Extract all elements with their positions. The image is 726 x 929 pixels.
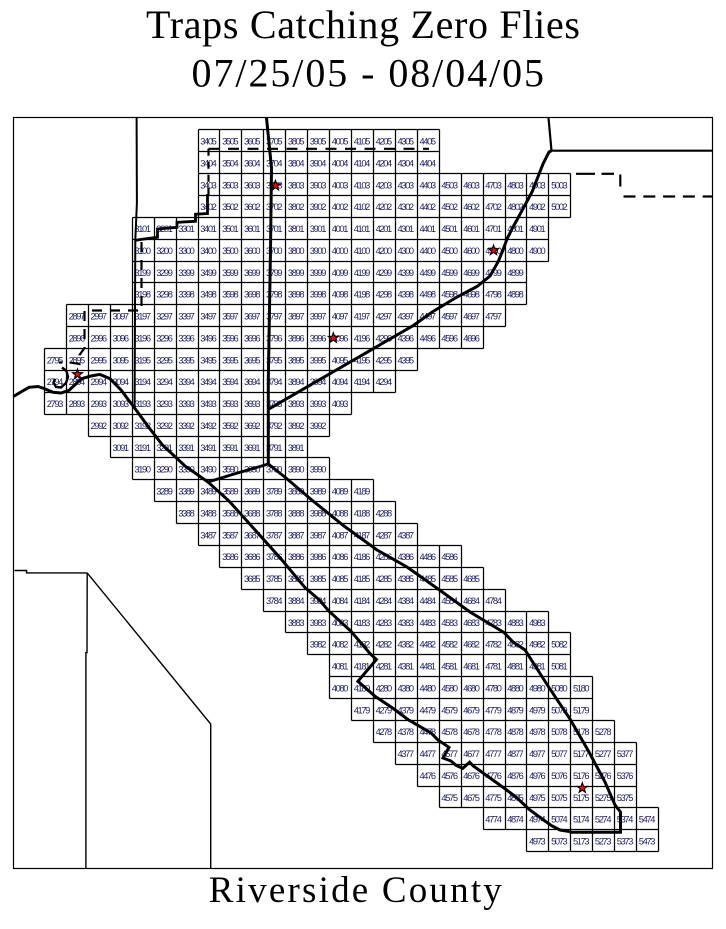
svg-text:3396: 3396 (178, 334, 195, 344)
svg-text:3900: 3900 (310, 246, 327, 256)
svg-text:4976: 4976 (529, 771, 546, 781)
svg-text:3500: 3500 (222, 246, 239, 256)
svg-text:4297: 4297 (376, 312, 393, 322)
svg-text:4979: 4979 (529, 705, 546, 715)
svg-text:4294: 4294 (376, 377, 393, 387)
svg-text:5081: 5081 (551, 662, 568, 672)
svg-text:4800: 4800 (507, 246, 524, 256)
svg-text:2896: 2896 (69, 334, 86, 344)
svg-text:4186: 4186 (354, 552, 371, 562)
svg-text:3593: 3593 (222, 399, 239, 409)
svg-text:4902: 4902 (529, 202, 546, 212)
svg-text:4876: 4876 (507, 771, 524, 781)
svg-text:3290: 3290 (156, 465, 173, 475)
svg-text:4880: 4880 (507, 684, 524, 694)
svg-text:4899: 4899 (507, 268, 524, 278)
svg-text:4685: 4685 (463, 574, 480, 584)
svg-text:4278: 4278 (376, 727, 393, 737)
svg-text:07/25/05 - 08/04/05: 07/25/05 - 08/04/05 (192, 51, 545, 96)
svg-text:5076: 5076 (551, 771, 568, 781)
svg-text:3884: 3884 (288, 596, 305, 606)
svg-text:4385: 4385 (398, 574, 415, 584)
svg-text:4386: 4386 (398, 552, 415, 562)
svg-text:4404: 4404 (420, 159, 437, 169)
svg-text:3503: 3503 (222, 180, 239, 190)
svg-text:3895: 3895 (288, 355, 305, 365)
svg-text:3890: 3890 (288, 465, 305, 475)
svg-text:4396: 4396 (398, 334, 415, 344)
svg-text:3399: 3399 (178, 268, 195, 278)
svg-text:3799: 3799 (266, 268, 283, 278)
svg-text:3392: 3392 (178, 421, 195, 431)
svg-text:3785: 3785 (266, 574, 283, 584)
svg-text:4477: 4477 (420, 749, 437, 759)
svg-text:5277: 5277 (595, 749, 612, 759)
svg-text:2993: 2993 (91, 399, 108, 409)
svg-text:5077: 5077 (551, 749, 568, 759)
svg-text:5073: 5073 (551, 837, 568, 847)
svg-text:4099: 4099 (332, 268, 349, 278)
svg-text:5173: 5173 (573, 837, 590, 847)
svg-text:4581: 4581 (441, 662, 458, 672)
svg-text:4382: 4382 (398, 640, 415, 650)
svg-text:4097: 4097 (332, 312, 349, 322)
svg-text:3194: 3194 (134, 377, 151, 387)
svg-text:Traps Catching Zero Flies: Traps Catching Zero Flies (146, 2, 580, 47)
svg-text:4774: 4774 (485, 815, 502, 825)
svg-text:3499: 3499 (200, 268, 217, 278)
svg-text:4087: 4087 (332, 530, 349, 540)
svg-text:4098: 4098 (332, 290, 349, 300)
svg-text:3393: 3393 (178, 399, 195, 409)
svg-text:4100: 4100 (354, 246, 371, 256)
svg-text:4575: 4575 (441, 793, 458, 803)
svg-text:3198: 3198 (134, 290, 151, 300)
svg-text:3701: 3701 (266, 224, 283, 234)
svg-text:3992: 3992 (310, 421, 327, 431)
svg-text:3903: 3903 (310, 180, 327, 190)
svg-text:4975: 4975 (529, 793, 546, 803)
svg-text:3804: 3804 (288, 159, 305, 169)
svg-text:4603: 4603 (463, 180, 480, 190)
svg-text:4582: 4582 (441, 640, 458, 650)
svg-text:4378: 4378 (398, 727, 415, 737)
svg-text:5003: 5003 (551, 180, 568, 190)
svg-text:3888: 3888 (288, 509, 305, 519)
svg-text:3196: 3196 (134, 334, 151, 344)
svg-text:4287: 4287 (376, 530, 393, 540)
svg-text:4977: 4977 (529, 749, 546, 759)
svg-text:3093: 3093 (113, 399, 130, 409)
svg-text:3391: 3391 (178, 443, 195, 453)
svg-text:4105: 4105 (354, 137, 371, 147)
svg-text:4503: 4503 (441, 180, 458, 190)
svg-text:2992: 2992 (91, 421, 108, 431)
svg-text:3289: 3289 (156, 487, 173, 497)
svg-text:4680: 4680 (463, 684, 480, 694)
svg-text:4803: 4803 (507, 180, 524, 190)
svg-text:3987: 3987 (310, 530, 327, 540)
svg-text:4201: 4201 (376, 224, 393, 234)
svg-text:3191: 3191 (134, 443, 151, 453)
svg-text:5075: 5075 (551, 793, 568, 803)
svg-text:5074: 5074 (551, 815, 568, 825)
svg-text:3693: 3693 (244, 399, 261, 409)
svg-text:4579: 4579 (441, 705, 458, 715)
svg-text:4089: 4089 (332, 487, 349, 497)
svg-text:4699: 4699 (463, 268, 480, 278)
svg-text:3996: 3996 (310, 334, 327, 344)
svg-text:4597: 4597 (441, 312, 458, 322)
svg-text:2897: 2897 (69, 312, 86, 322)
svg-text:3490: 3490 (200, 465, 217, 475)
svg-text:4002: 4002 (332, 202, 349, 212)
svg-text:3398: 3398 (178, 290, 195, 300)
svg-text:5082: 5082 (551, 640, 568, 650)
svg-text:4781: 4781 (485, 662, 502, 672)
svg-text:3501: 3501 (222, 224, 239, 234)
svg-text:3095: 3095 (113, 355, 130, 365)
svg-text:5176: 5176 (573, 771, 590, 781)
svg-text:3388: 3388 (178, 509, 195, 519)
svg-text:5078: 5078 (551, 727, 568, 737)
svg-text:4185: 4185 (354, 574, 371, 584)
svg-text:4881: 4881 (507, 662, 524, 672)
svg-text:4198: 4198 (354, 290, 371, 300)
svg-text:3897: 3897 (288, 312, 305, 322)
svg-text:3993: 3993 (310, 399, 327, 409)
svg-text:4479: 4479 (420, 705, 437, 715)
svg-text:4300: 4300 (398, 246, 415, 256)
svg-text:3688: 3688 (244, 509, 261, 519)
svg-text:4081: 4081 (332, 662, 349, 672)
svg-text:3686: 3686 (244, 552, 261, 562)
svg-text:3695: 3695 (244, 355, 261, 365)
svg-text:2795: 2795 (47, 355, 64, 365)
svg-text:4777: 4777 (485, 749, 502, 759)
svg-text:3405: 3405 (200, 137, 217, 147)
svg-text:4395: 4395 (398, 355, 415, 365)
svg-text:4502: 4502 (441, 202, 458, 212)
svg-text:4683: 4683 (463, 618, 480, 628)
svg-text:3904: 3904 (310, 159, 327, 169)
svg-text:4701: 4701 (485, 224, 502, 234)
svg-text:4298: 4298 (376, 290, 393, 300)
svg-text:3197: 3197 (134, 312, 151, 322)
svg-text:3300: 3300 (178, 246, 195, 256)
svg-text:4285: 4285 (376, 574, 393, 584)
svg-text:3689: 3689 (244, 487, 261, 497)
svg-text:3999: 3999 (310, 268, 327, 278)
svg-text:3505: 3505 (222, 137, 239, 147)
svg-text:4082: 4082 (332, 640, 349, 650)
svg-text:4583: 4583 (441, 618, 458, 628)
svg-text:4003: 4003 (332, 180, 349, 190)
svg-text:3597: 3597 (222, 312, 239, 322)
svg-text:4377: 4377 (398, 749, 415, 759)
svg-text:4400: 4400 (420, 246, 437, 256)
svg-text:3494: 3494 (200, 377, 217, 387)
svg-text:4484: 4484 (420, 596, 437, 606)
svg-text:3985: 3985 (310, 574, 327, 584)
svg-text:4179: 4179 (354, 705, 371, 715)
svg-text:4775: 4775 (485, 793, 502, 803)
svg-text:5474: 5474 (639, 815, 656, 825)
svg-text:Riverside County: Riverside County (209, 870, 503, 911)
svg-text:4780: 4780 (485, 684, 502, 694)
svg-text:4301: 4301 (398, 224, 415, 234)
svg-text:3599: 3599 (222, 268, 239, 278)
svg-text:3803: 3803 (288, 180, 305, 190)
svg-text:3997: 3997 (310, 312, 327, 322)
svg-text:4702: 4702 (485, 202, 502, 212)
svg-text:3886: 3886 (288, 552, 305, 562)
svg-text:3694: 3694 (244, 377, 261, 387)
svg-text:3397: 3397 (178, 312, 195, 322)
svg-text:3982: 3982 (310, 640, 327, 650)
svg-text:4405: 4405 (420, 137, 437, 147)
svg-text:3587: 3587 (222, 530, 239, 540)
svg-text:4782: 4782 (485, 640, 502, 650)
svg-text:3601: 3601 (244, 224, 261, 234)
svg-text:4194: 4194 (354, 377, 371, 387)
svg-text:4281: 4281 (376, 662, 393, 672)
svg-text:3692: 3692 (244, 421, 261, 431)
svg-text:4586: 4586 (441, 552, 458, 562)
svg-text:3892: 3892 (288, 421, 305, 431)
svg-text:4094: 4094 (332, 377, 349, 387)
svg-text:4101: 4101 (354, 224, 371, 234)
svg-text:4104: 4104 (354, 159, 371, 169)
svg-text:4980: 4980 (529, 684, 546, 694)
svg-text:4283: 4283 (376, 618, 393, 628)
svg-text:4103: 4103 (354, 180, 371, 190)
svg-text:4679: 4679 (463, 705, 480, 715)
svg-text:3600: 3600 (244, 246, 261, 256)
svg-text:3092: 3092 (113, 421, 130, 431)
svg-text:3598: 3598 (222, 290, 239, 300)
svg-text:5376: 5376 (617, 771, 634, 781)
svg-text:3395: 3395 (178, 355, 195, 365)
svg-text:3898: 3898 (288, 290, 305, 300)
svg-text:5274: 5274 (595, 815, 612, 825)
svg-text:2793: 2793 (47, 399, 64, 409)
svg-text:3498: 3498 (200, 290, 217, 300)
svg-text:3497: 3497 (200, 312, 217, 322)
svg-text:4480: 4480 (420, 684, 437, 694)
svg-text:3691: 3691 (244, 443, 261, 453)
svg-text:2994: 2994 (91, 377, 108, 387)
svg-text:4678: 4678 (463, 727, 480, 737)
svg-text:3193: 3193 (134, 399, 151, 409)
svg-text:5273: 5273 (595, 837, 612, 847)
svg-text:4797: 4797 (485, 312, 502, 322)
svg-text:3802: 3802 (288, 202, 305, 212)
svg-text:4305: 4305 (398, 137, 415, 147)
svg-text:4983: 4983 (529, 618, 546, 628)
svg-text:4481: 4481 (420, 662, 437, 672)
svg-text:3801: 3801 (288, 224, 305, 234)
svg-text:3995: 3995 (310, 355, 327, 365)
svg-text:5174: 5174 (573, 815, 590, 825)
svg-text:4399: 4399 (398, 268, 415, 278)
svg-text:4302: 4302 (398, 202, 415, 212)
svg-text:3602: 3602 (244, 202, 261, 212)
svg-text:4901: 4901 (529, 224, 546, 234)
svg-text:4499: 4499 (420, 268, 437, 278)
svg-text:4387: 4387 (398, 530, 415, 540)
svg-text:4677: 4677 (463, 749, 480, 759)
svg-text:4401: 4401 (420, 224, 437, 234)
svg-text:3199: 3199 (134, 268, 151, 278)
svg-text:5278: 5278 (595, 727, 612, 737)
svg-text:3487: 3487 (200, 530, 217, 540)
svg-text:4204: 4204 (376, 159, 393, 169)
svg-text:4284: 4284 (376, 596, 393, 606)
svg-text:3604: 3604 (244, 159, 261, 169)
svg-text:3883: 3883 (288, 618, 305, 628)
svg-text:4295: 4295 (376, 355, 393, 365)
svg-text:4778: 4778 (485, 727, 502, 737)
svg-text:4483: 4483 (420, 618, 437, 628)
svg-text:4878: 4878 (507, 727, 524, 737)
svg-text:4900: 4900 (529, 246, 546, 256)
svg-text:3896: 3896 (288, 334, 305, 344)
svg-text:3401: 3401 (200, 224, 217, 234)
svg-text:3299: 3299 (156, 268, 173, 278)
svg-text:3496: 3496 (200, 334, 217, 344)
svg-text:3702: 3702 (266, 202, 283, 212)
svg-text:3591: 3591 (222, 443, 239, 453)
svg-text:3700: 3700 (266, 246, 283, 256)
svg-text:4288: 4288 (376, 509, 393, 519)
svg-text:3504: 3504 (222, 159, 239, 169)
svg-text:4380: 4380 (398, 684, 415, 694)
svg-text:3605: 3605 (244, 137, 261, 147)
svg-text:3704: 3704 (266, 159, 283, 169)
svg-text:4898: 4898 (507, 290, 524, 300)
svg-text:4779: 4779 (485, 705, 502, 715)
svg-text:4798: 4798 (485, 290, 502, 300)
svg-text:3887: 3887 (288, 530, 305, 540)
svg-text:3905: 3905 (310, 137, 327, 147)
svg-text:4681: 4681 (463, 662, 480, 672)
svg-text:3297: 3297 (156, 312, 173, 322)
svg-text:4879: 4879 (507, 705, 524, 715)
svg-text:5377: 5377 (617, 749, 634, 759)
svg-text:3389: 3389 (178, 487, 195, 497)
svg-text:4696: 4696 (463, 334, 480, 344)
svg-text:4203: 4203 (376, 180, 393, 190)
svg-text:3293: 3293 (156, 399, 173, 409)
svg-text:4093: 4093 (332, 399, 349, 409)
svg-text:4205: 4205 (376, 137, 393, 147)
svg-text:3292: 3292 (156, 421, 173, 431)
svg-text:4883: 4883 (507, 618, 524, 628)
svg-text:3696: 3696 (244, 334, 261, 344)
svg-text:4381: 4381 (398, 662, 415, 672)
svg-text:4299: 4299 (376, 268, 393, 278)
svg-text:4004: 4004 (332, 159, 349, 169)
svg-text:3492: 3492 (200, 421, 217, 431)
svg-text:4398: 4398 (398, 290, 415, 300)
svg-text:4085: 4085 (332, 574, 349, 584)
svg-text:4682: 4682 (463, 640, 480, 650)
svg-text:4676: 4676 (463, 771, 480, 781)
svg-text:4601: 4601 (463, 224, 480, 234)
svg-text:4403: 4403 (420, 180, 437, 190)
svg-text:3495: 3495 (200, 355, 217, 365)
svg-text:4602: 4602 (463, 202, 480, 212)
svg-text:4197: 4197 (354, 312, 371, 322)
svg-text:3788: 3788 (266, 509, 283, 519)
svg-text:4102: 4102 (354, 202, 371, 212)
svg-text:4496: 4496 (420, 334, 437, 344)
svg-text:5375: 5375 (617, 793, 634, 803)
svg-text:3195: 3195 (134, 355, 151, 365)
svg-text:3891: 3891 (288, 443, 305, 453)
svg-text:4784: 4784 (485, 596, 502, 606)
svg-text:3595: 3595 (222, 355, 239, 365)
svg-text:4486: 4486 (420, 552, 437, 562)
svg-text:3301: 3301 (178, 224, 195, 234)
svg-text:4303: 4303 (398, 180, 415, 190)
svg-text:3685: 3685 (244, 574, 261, 584)
svg-text:4005: 4005 (332, 137, 349, 147)
svg-text:5180: 5180 (573, 684, 590, 694)
svg-text:2997: 2997 (91, 312, 108, 322)
svg-text:4084: 4084 (332, 596, 349, 606)
svg-text:4282: 4282 (376, 640, 393, 650)
svg-text:4599: 4599 (441, 268, 458, 278)
svg-text:4576: 4576 (441, 771, 458, 781)
svg-text:3697: 3697 (244, 312, 261, 322)
svg-text:3491: 3491 (200, 443, 217, 453)
svg-text:4874: 4874 (507, 815, 524, 825)
svg-text:4184: 4184 (354, 596, 371, 606)
svg-text:3400: 3400 (200, 246, 217, 256)
svg-text:3502: 3502 (222, 202, 239, 212)
svg-text:4675: 4675 (463, 793, 480, 803)
svg-text:4982: 4982 (529, 640, 546, 650)
svg-text:4684: 4684 (463, 596, 480, 606)
svg-text:4304: 4304 (398, 159, 415, 169)
svg-text:3298: 3298 (156, 290, 173, 300)
svg-text:3784: 3784 (266, 596, 283, 606)
svg-text:4384: 4384 (398, 596, 415, 606)
svg-text:2996: 2996 (91, 334, 108, 344)
svg-text:4476: 4476 (420, 771, 437, 781)
svg-text:3893: 3893 (288, 399, 305, 409)
svg-text:4580: 4580 (441, 684, 458, 694)
svg-text:3200: 3200 (156, 246, 173, 256)
svg-text:5002: 5002 (551, 202, 568, 212)
svg-text:4600: 4600 (463, 246, 480, 256)
svg-text:4080: 4080 (332, 684, 349, 694)
svg-text:5473: 5473 (639, 837, 656, 847)
svg-text:3986: 3986 (310, 552, 327, 562)
svg-text:4498: 4498 (420, 290, 437, 300)
svg-text:3800: 3800 (288, 246, 305, 256)
svg-text:3488: 3488 (200, 509, 217, 519)
svg-text:3998: 3998 (310, 290, 327, 300)
svg-text:4000: 4000 (332, 246, 349, 256)
svg-text:3096: 3096 (113, 334, 130, 344)
svg-text:4402: 4402 (420, 202, 437, 212)
svg-text:4500: 4500 (441, 246, 458, 256)
svg-text:5175: 5175 (573, 793, 590, 803)
svg-text:4280: 4280 (376, 684, 393, 694)
